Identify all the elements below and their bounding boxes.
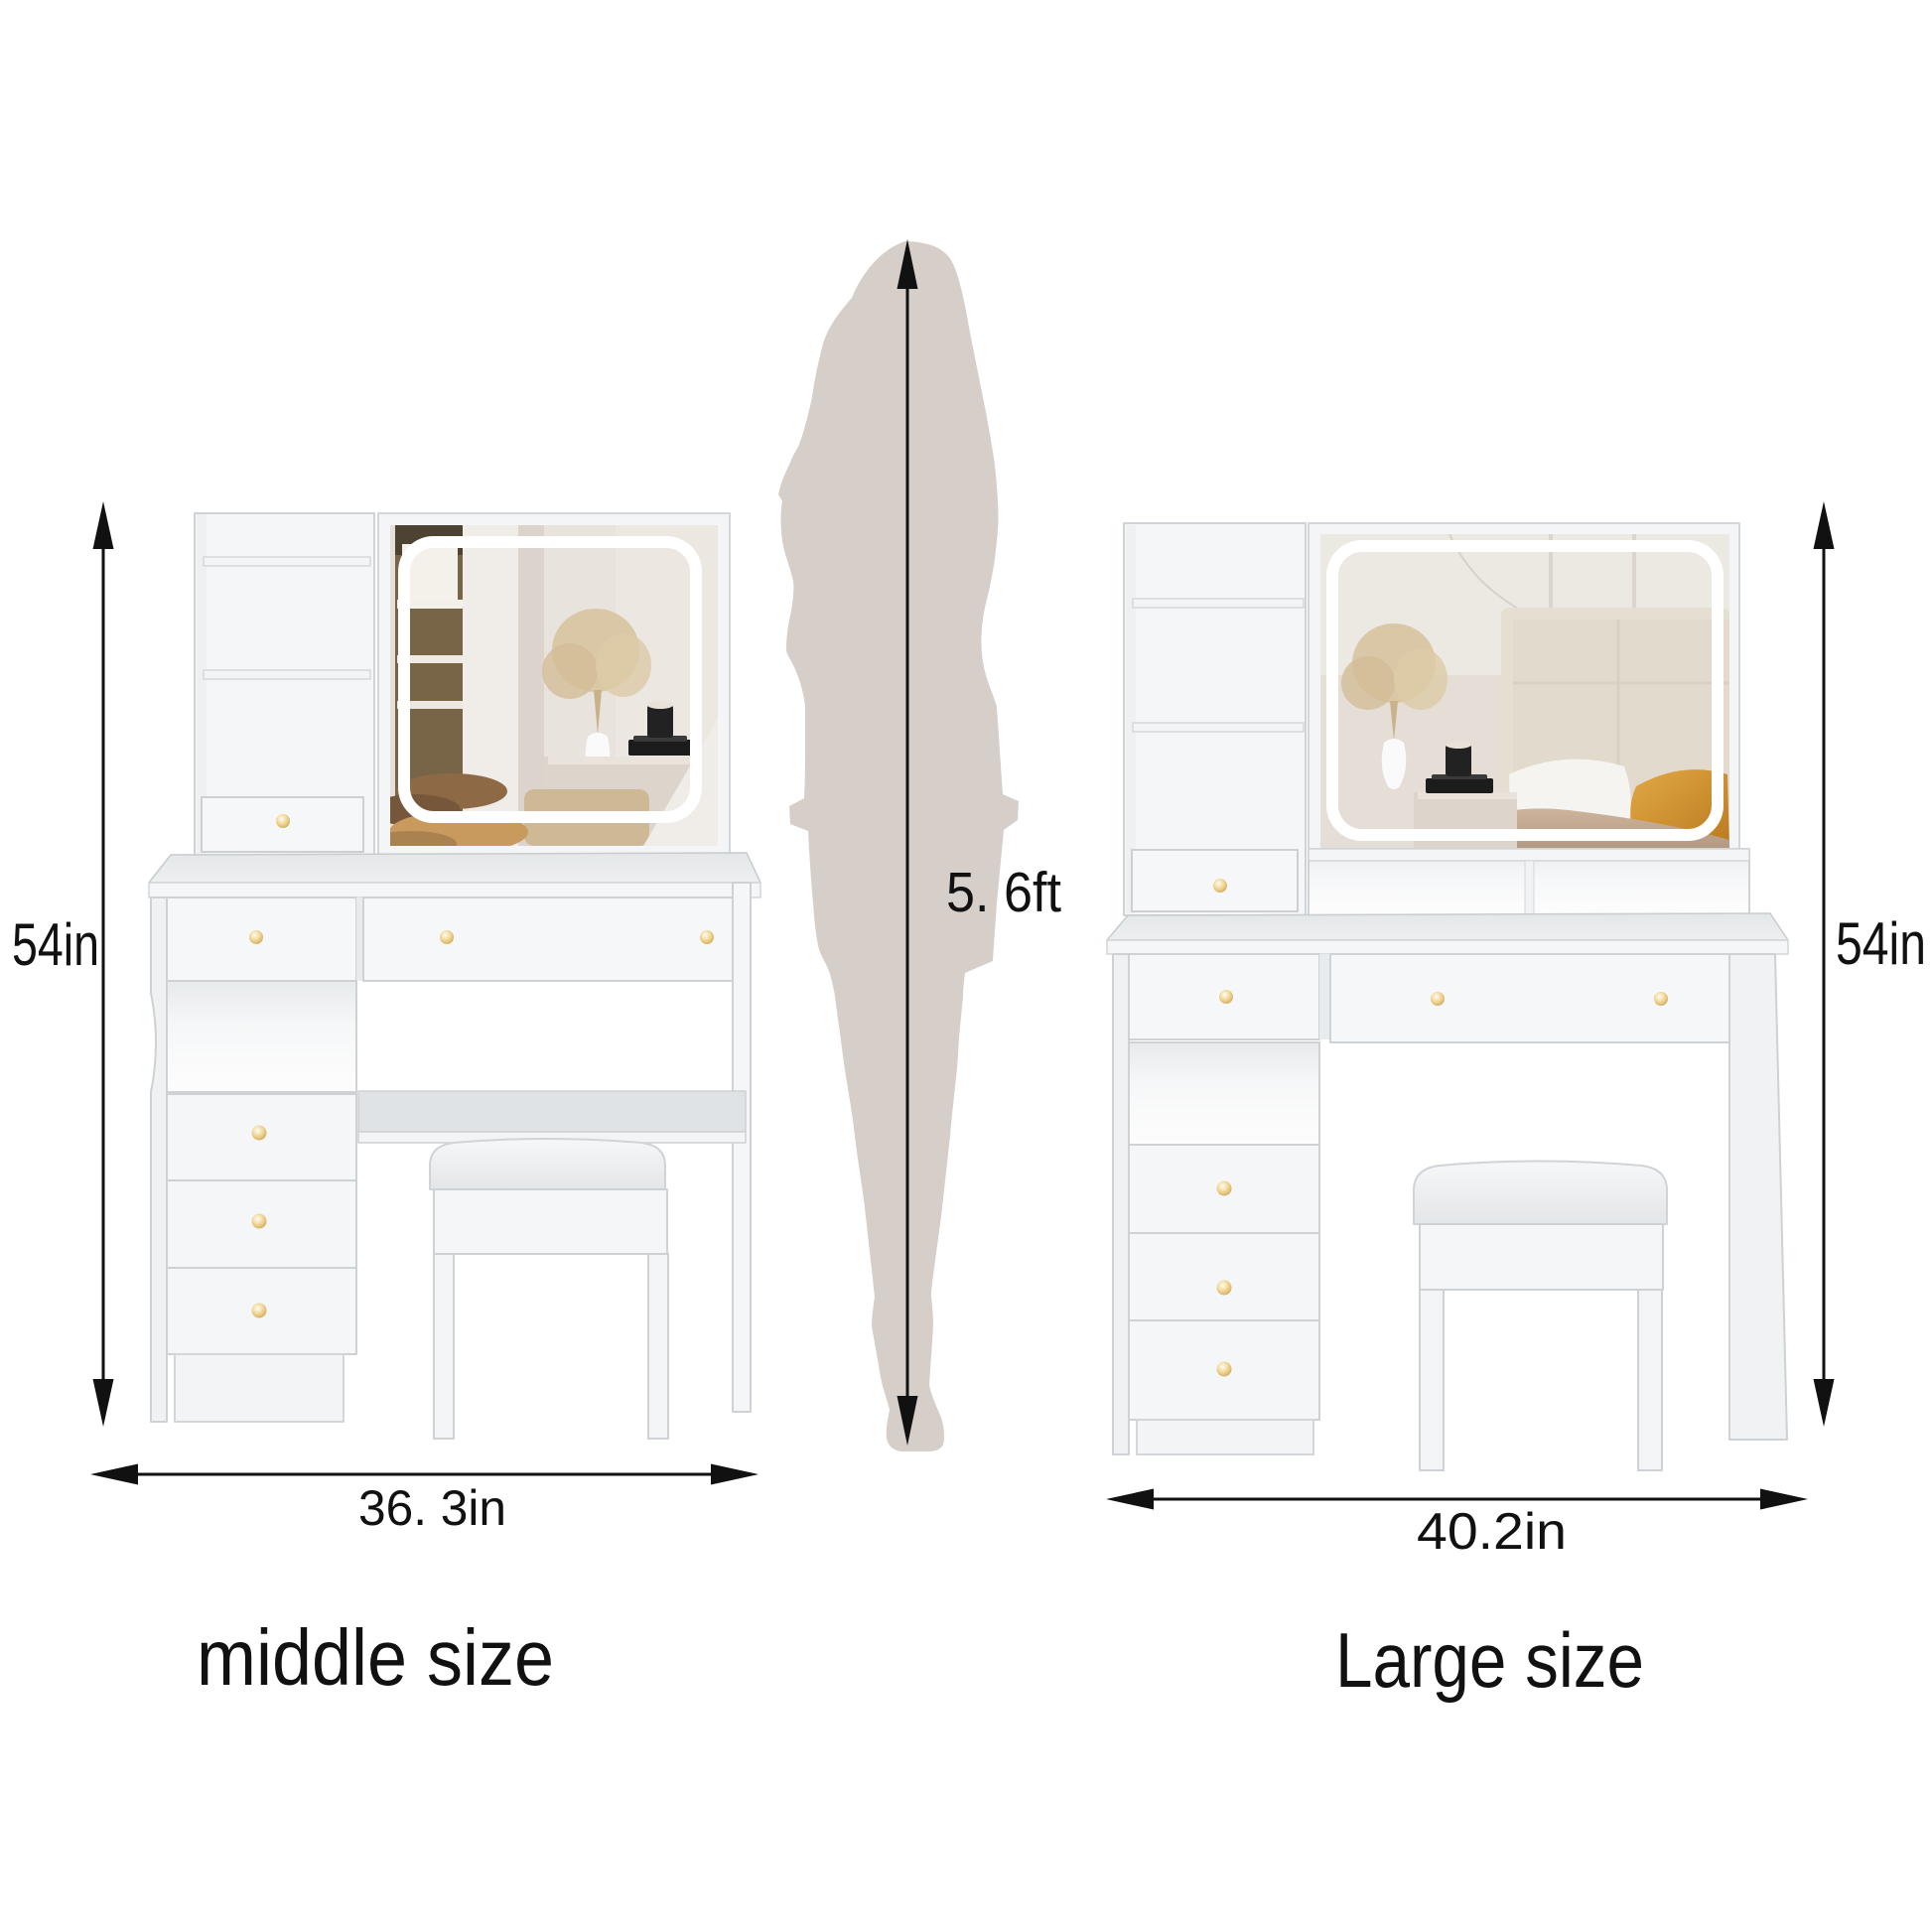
svg-text:5. 6ft: 5. 6ft <box>946 861 1061 924</box>
svg-text:54in: 54in <box>1836 910 1926 977</box>
svg-text:40.2in: 40.2in <box>1417 1503 1567 1561</box>
svg-text:36. 3in: 36. 3in <box>358 1480 506 1536</box>
svg-text:54in: 54in <box>12 911 99 978</box>
svg-text:Large size: Large size <box>1335 1616 1644 1704</box>
svg-text:middle size: middle size <box>197 1613 554 1702</box>
